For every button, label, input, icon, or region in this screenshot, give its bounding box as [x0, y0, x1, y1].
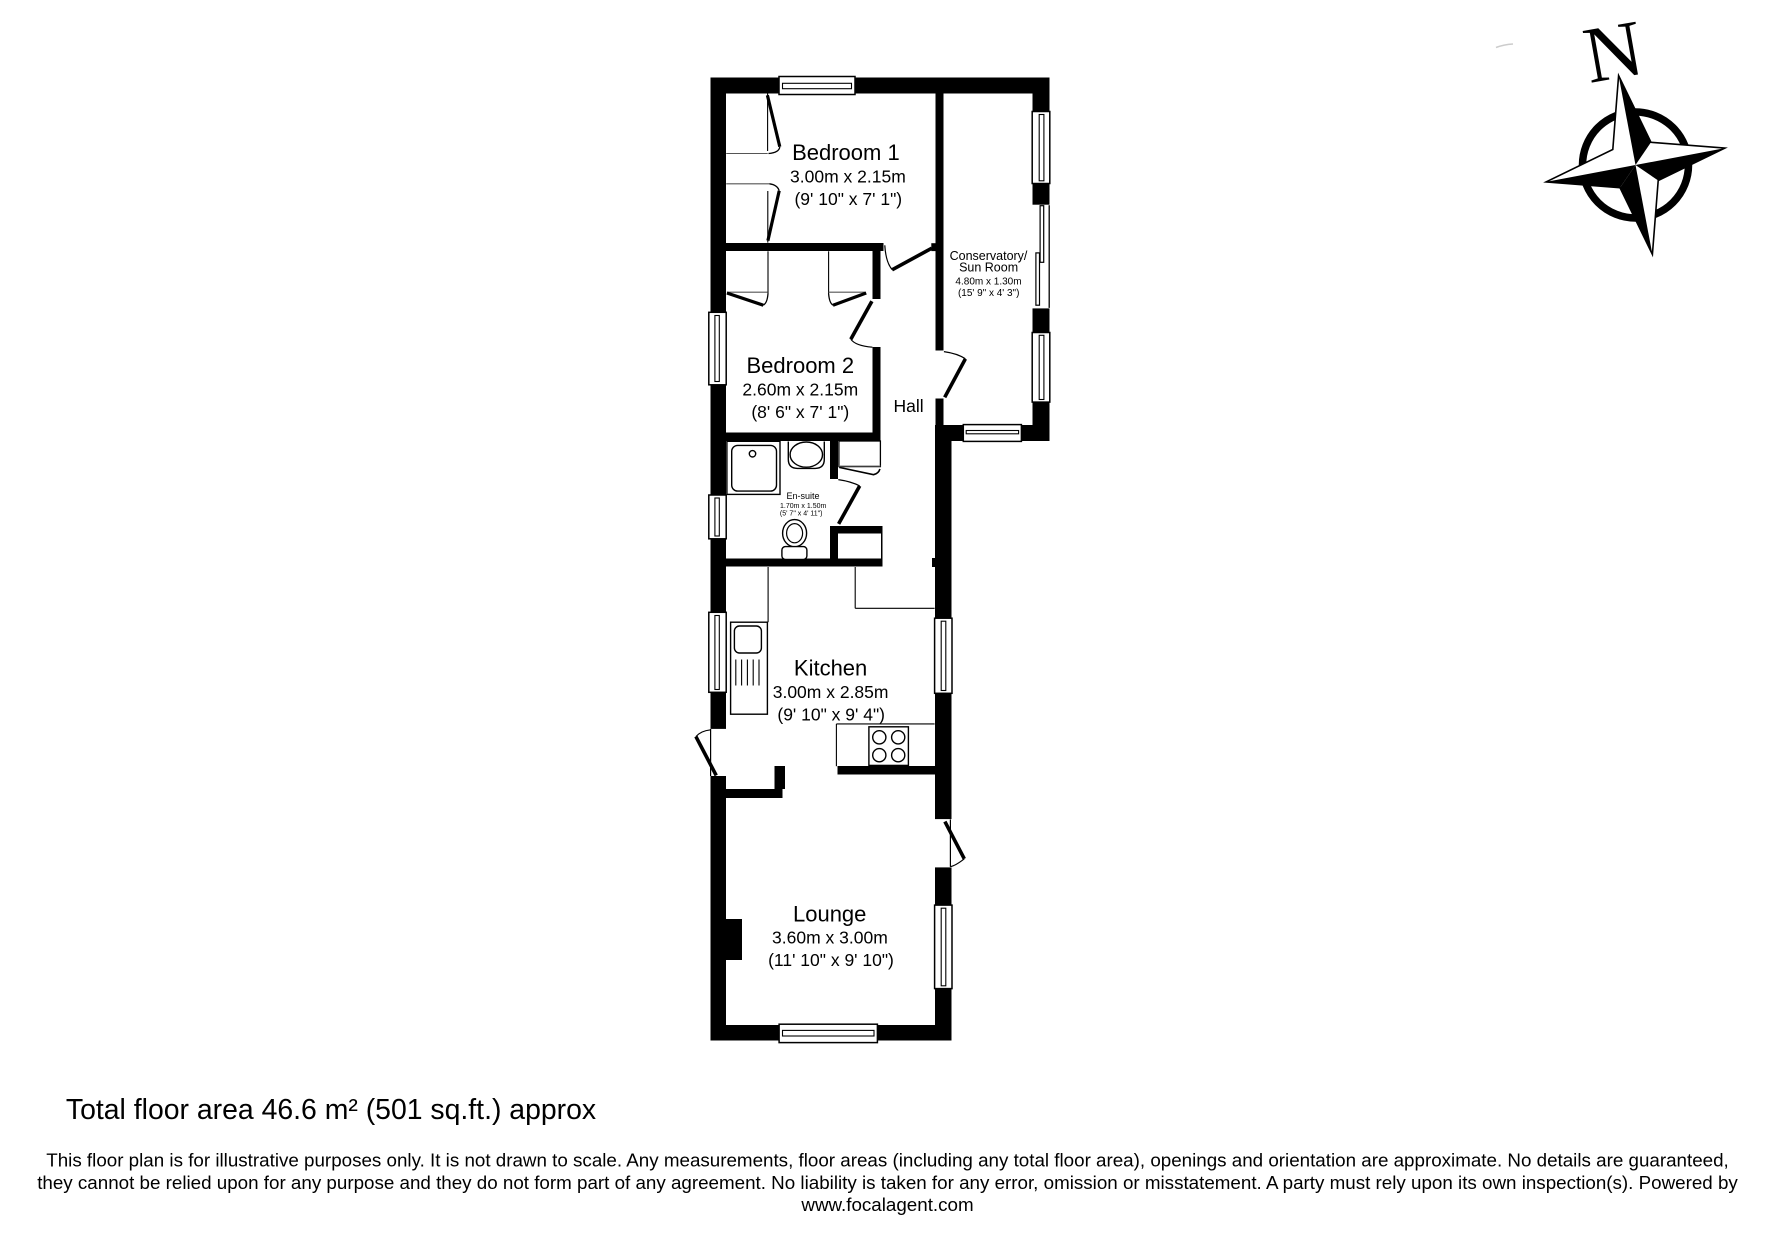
svg-text:1.70m x 1.50m: 1.70m x 1.50m — [780, 503, 826, 510]
svg-text:(9' 10" x 7' 1"): (9' 10" x 7' 1") — [794, 189, 902, 209]
svg-text:3.60m x 3.00m: 3.60m x 3.00m — [772, 928, 888, 948]
svg-text:(11' 10" x 9' 10"): (11' 10" x 9' 10") — [768, 950, 894, 970]
svg-text:2.60m x 2.15m: 2.60m x 2.15m — [742, 380, 858, 400]
svg-text:En-suite: En-suite — [786, 491, 819, 501]
svg-text:This floor plan is for illustr: This floor plan is for illustrative purp… — [46, 1150, 1729, 1171]
svg-text:Bedroom 2: Bedroom 2 — [746, 353, 854, 378]
svg-text:Total floor area 46.6 m² (501: Total floor area 46.6 m² (501 sq.ft.) ap… — [66, 1094, 596, 1126]
svg-text:Hall: Hall — [894, 396, 924, 416]
svg-text:they cannot be relied upon for: they cannot be relied upon for any purpo… — [37, 1172, 1738, 1193]
svg-text:www.focalagent.com: www.focalagent.com — [800, 1194, 973, 1215]
svg-text:N: N — [1577, 4, 1649, 101]
svg-text:(8' 6" x 7' 1"): (8' 6" x 7' 1") — [751, 402, 849, 422]
svg-text:Lounge: Lounge — [793, 901, 866, 926]
svg-text:Bedroom 1: Bedroom 1 — [792, 140, 900, 165]
svg-text:4.80m x 1.30m: 4.80m x 1.30m — [955, 276, 1021, 287]
svg-text:3.00m x 2.85m: 3.00m x 2.85m — [773, 682, 889, 702]
svg-text:(5' 7" x 4' 11"): (5' 7" x 4' 11") — [780, 510, 823, 517]
svg-text:Kitchen: Kitchen — [794, 656, 867, 681]
svg-text:Sun Room: Sun Room — [959, 261, 1018, 275]
svg-text:(15' 9" x 4' 3"): (15' 9" x 4' 3") — [958, 288, 1020, 299]
svg-text:(9' 10" x 9' 4"): (9' 10" x 9' 4") — [777, 704, 885, 724]
svg-text:3.00m x 2.15m: 3.00m x 2.15m — [790, 166, 906, 186]
